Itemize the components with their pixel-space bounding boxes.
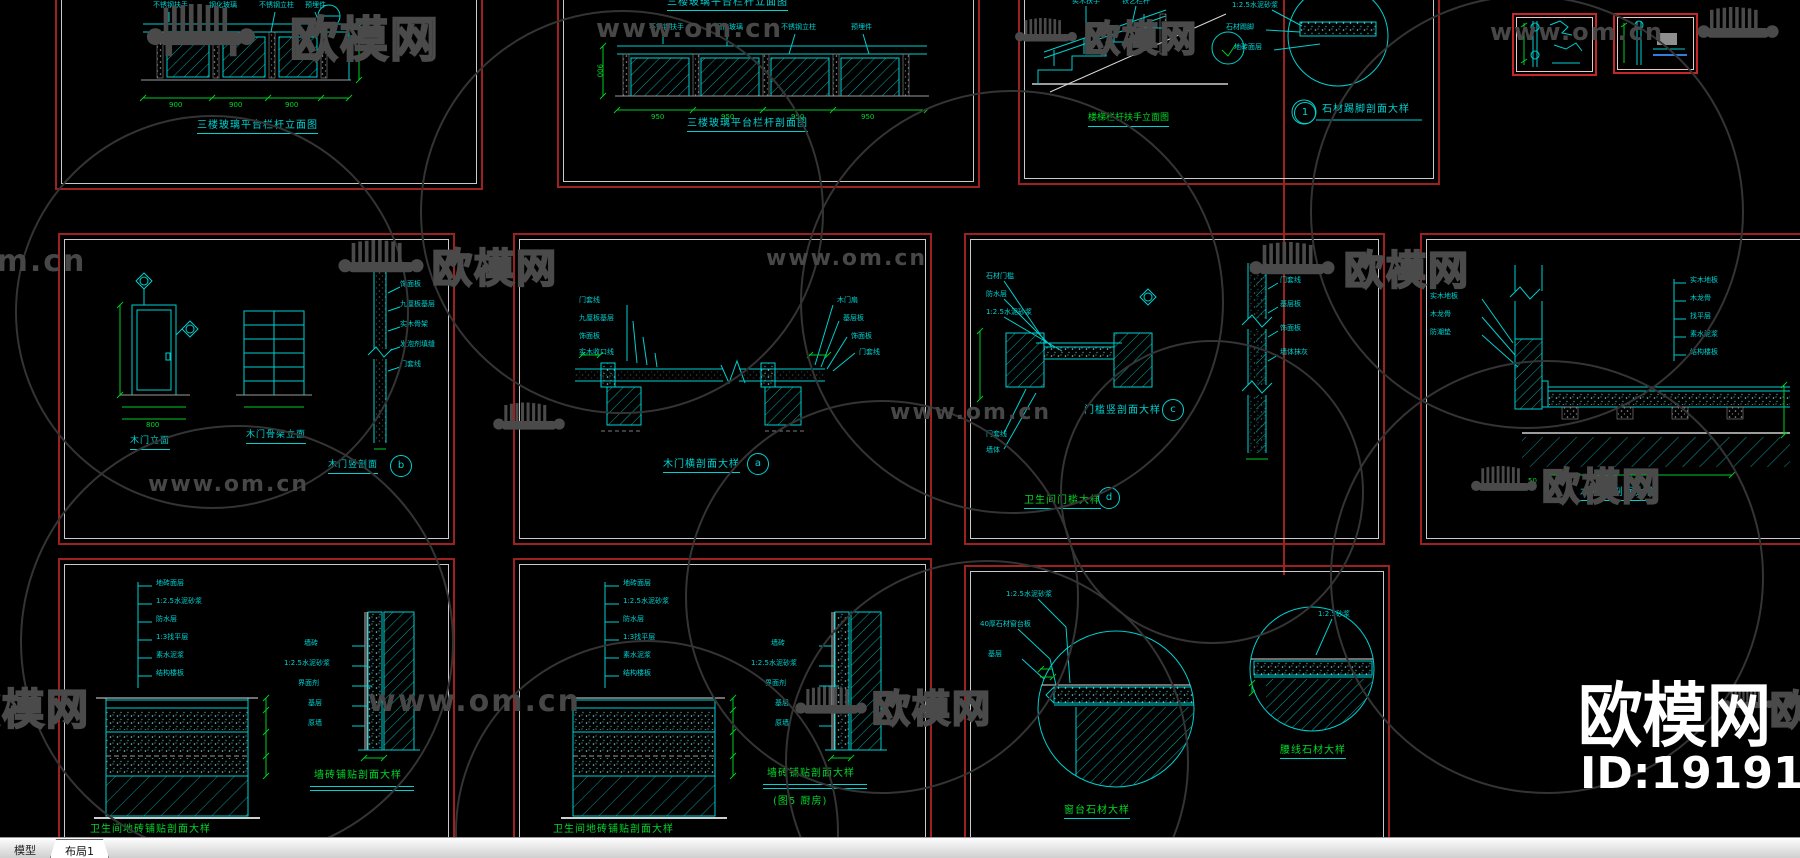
brand-id: ID:1919135 — [1580, 748, 1800, 799]
annotation: 40厚石材窗台板 — [980, 621, 1031, 629]
annotation: 1:2.5砂浆 — [1318, 611, 1350, 619]
annotation: 基层 — [308, 700, 322, 708]
annotation: 饰面板 — [579, 333, 600, 341]
watermark-brand: 欧模网 — [0, 676, 90, 737]
annotation: 1:2.5水泥砂浆 — [1232, 2, 1278, 10]
annotation: 饰面板 — [1280, 325, 1301, 333]
drawing-title: 楼梯栏杆扶手立面图 — [1088, 114, 1169, 127]
dimension: 900 — [169, 102, 182, 110]
annotation: 找平层 — [1690, 313, 1711, 321]
annotation: 石材门槛 — [986, 273, 1014, 281]
detail-title: 石材踢脚剖面大样 — [1322, 104, 1410, 115]
dimension: 900 — [595, 64, 603, 77]
drawing-title: 门槛竖剖面大样 — [1084, 405, 1161, 416]
detail-bubble: d — [1098, 487, 1120, 509]
annotation: 结构楼板 — [156, 670, 184, 678]
annotation: 门套线 — [579, 297, 600, 305]
annotation: 基层 — [988, 651, 1002, 659]
annotation: 实木地板 — [1690, 277, 1718, 285]
annotation: 原墙 — [308, 720, 322, 728]
annotation: 墙砖 — [304, 640, 318, 648]
annotation: 原墙 — [775, 720, 789, 728]
detail-bubble: 1 — [1294, 102, 1316, 124]
drawing-title: 墙砖铺贴剖面大样 — [314, 770, 402, 781]
drawing-title: 墙砖铺贴剖面大样 — [767, 768, 855, 779]
annotation: 墙体 — [986, 447, 1000, 455]
annotation: 素水泥浆 — [156, 652, 184, 660]
watermark-brand: 欧模网 — [290, 0, 440, 70]
annotation: 界面剂 — [765, 680, 786, 688]
dimension: 900 — [229, 102, 242, 110]
annotation: 1:2.5水泥砂浆 — [623, 598, 669, 606]
annotation: 墙砖 — [771, 640, 785, 648]
viewport-stone-details[interactable]: 1:2.5水泥砂浆 40厚石材窗台板 基层 窗台石材大样 1:2.5砂浆 腰线石… — [964, 565, 1390, 854]
detail-bubble: a — [747, 453, 769, 475]
annotation: 木龙骨 — [1430, 311, 1451, 319]
annotation: 实木骨架 — [400, 321, 428, 329]
tab-model[interactable]: 模型 — [0, 839, 50, 858]
watermark-url: om.cn — [0, 244, 86, 279]
drawing-title: 木门立面 — [130, 437, 170, 450]
annotation: 1:2.5水泥砂浆 — [284, 660, 330, 668]
sofa-icon — [1696, 2, 1780, 54]
annotation: 界面剂 — [298, 680, 319, 688]
detail-bubble: b — [390, 455, 412, 477]
annotation: 铁艺栏杆 — [1122, 0, 1150, 6]
annotation: 素水泥浆 — [1690, 331, 1718, 339]
drawing-title: 木门骨架立面 — [246, 431, 306, 444]
annotation: 结构楼板 — [1690, 349, 1718, 357]
annotation: 九厘板基层 — [400, 301, 435, 309]
watermark-url: www.om.cn — [1490, 18, 1664, 46]
annotation: 预埋件 — [851, 24, 872, 32]
dimension: 950 — [861, 114, 874, 122]
annotation: 防水层 — [623, 616, 644, 624]
detail-bubble: c — [1162, 399, 1184, 421]
annotation: 基层 — [775, 700, 789, 708]
dimension: 950 — [651, 114, 664, 122]
annotation: 发泡剂填缝 — [400, 341, 435, 349]
dimension: 800 — [146, 422, 159, 430]
annotation: 地砖面层 — [156, 580, 184, 588]
drawing-title: 三楼玻璃平台栏杆立面图 — [197, 120, 318, 134]
viewport-door-plan-section[interactable]: 门套线 九厘板基层 饰面板 实木收口线 木门扇 基层板 饰面板 门套线 木门横剖… — [513, 233, 932, 545]
annotation: 基层板 — [1280, 301, 1301, 309]
cad-canvas[interactable]: 欧模网 www.om.cn 欧模网 www.om.cn om.cn 欧模网 ww… — [0, 0, 1800, 858]
drawing-subtitle: (图5 厨房) — [773, 796, 827, 807]
drawing-title: 三楼玻璃平台栏杆剖面图 — [687, 118, 808, 132]
sofa-icon — [1014, 14, 1078, 54]
watermark-url: www.om.cn — [368, 684, 581, 719]
sofa-icon — [1470, 462, 1538, 504]
annotation: 1:3找平层 — [623, 634, 655, 642]
layout-tab-bar: 模型 布局1 — [0, 837, 1800, 858]
annotation: 防潮垫 — [1430, 329, 1451, 337]
annotation: 实木收口线 — [579, 349, 614, 357]
viewport-stair-detail[interactable]: 实木扶手 铁艺栏杆 楼梯栏杆扶手立面图 1:2.5水泥砂浆 石材踢脚 地砖面层 … — [1018, 0, 1440, 185]
annotation: 门套线 — [986, 431, 1007, 439]
annotation: 素水泥浆 — [623, 652, 651, 660]
annotation: 九厘板基层 — [579, 315, 614, 323]
annotation: 不锈钢立柱 — [781, 24, 816, 32]
annotation: 木龙骨 — [1690, 295, 1711, 303]
watermark-url: www.om.cn — [596, 14, 783, 44]
drawing-title: 卫生间门槛大样 — [1024, 495, 1101, 509]
annotation: 1:2.5水泥砂浆 — [156, 598, 202, 606]
watermark-brand-char: 欧 — [1770, 678, 1800, 736]
annotation: 基层板 — [843, 315, 864, 323]
sofa-icon — [492, 398, 566, 444]
sofa-icon — [116, 4, 286, 60]
annotation: 饰面板 — [851, 333, 872, 341]
annotation: 墙体抹灰 — [1280, 349, 1308, 357]
drawing-title: 卫生间地砖铺贴剖面大样 — [553, 824, 674, 835]
watermark-url: www.om.cn — [890, 400, 1051, 425]
drawing-title: 木门竖剖面 — [328, 461, 378, 474]
drawing-title: 腰线石材大样 — [1280, 745, 1346, 759]
brand-stamp: 欧模网 — [1578, 660, 1771, 761]
annotation: 木门扇 — [837, 297, 858, 305]
drawing-title: 窗台石材大样 — [1064, 805, 1130, 819]
sofa-icon — [794, 684, 868, 726]
annotation: 门套线 — [859, 349, 880, 357]
watermark-brand: 欧模网 — [1344, 238, 1470, 296]
watermark-url: www.om.cn — [766, 246, 927, 271]
watermark-brand: 欧模网 — [1542, 456, 1662, 511]
watermark-brand: 欧模网 — [432, 236, 558, 294]
drawing-title: 卫生间地砖铺贴剖面大样 — [90, 824, 211, 835]
annotation: 防水层 — [156, 616, 177, 624]
drawing-title: 三楼玻璃平台栏杆立面图 — [667, 0, 788, 11]
sofa-icon — [1246, 242, 1338, 286]
annotation: 石材踢脚 — [1226, 24, 1254, 32]
tab-layout1[interactable]: 布局1 — [50, 839, 109, 858]
annotation: 地砖面层 — [1234, 44, 1262, 52]
annotation: 实木扶手 — [1072, 0, 1100, 6]
annotation: 1:2.5水泥砂浆 — [986, 309, 1032, 317]
annotation: 1:2.5水泥砂浆 — [751, 660, 797, 668]
watermark-url: www.om.cn — [148, 472, 309, 497]
watermark-brand: 欧模网 — [1084, 10, 1198, 62]
drawing-title: 木门横剖面大样 — [663, 459, 740, 473]
annotation: 防水层 — [986, 291, 1007, 299]
sofa-icon — [336, 240, 426, 284]
watermark-brand: 欧模网 — [872, 678, 992, 733]
annotation: 1:2.5水泥砂浆 — [1006, 591, 1052, 599]
annotation: 地砖面层 — [623, 580, 651, 588]
annotation: 1:3找平层 — [156, 634, 188, 642]
annotation: 门套线 — [400, 361, 421, 369]
annotation: 结构楼板 — [623, 670, 651, 678]
dimension: 900 — [285, 102, 298, 110]
